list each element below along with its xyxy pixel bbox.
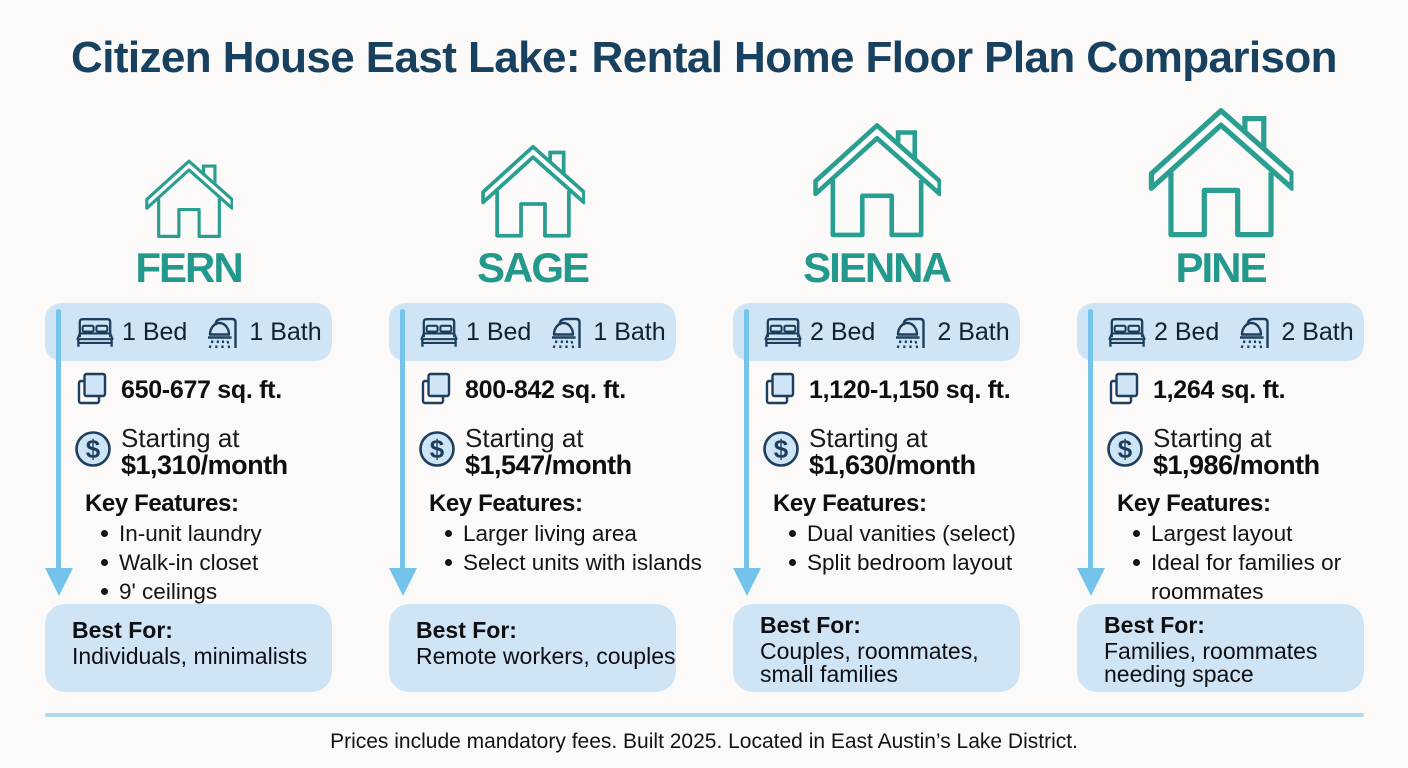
svg-text:$: $ (86, 434, 101, 464)
svg-text:$: $ (774, 434, 789, 464)
svg-text:$: $ (1118, 434, 1133, 464)
svg-text:$: $ (430, 434, 445, 464)
